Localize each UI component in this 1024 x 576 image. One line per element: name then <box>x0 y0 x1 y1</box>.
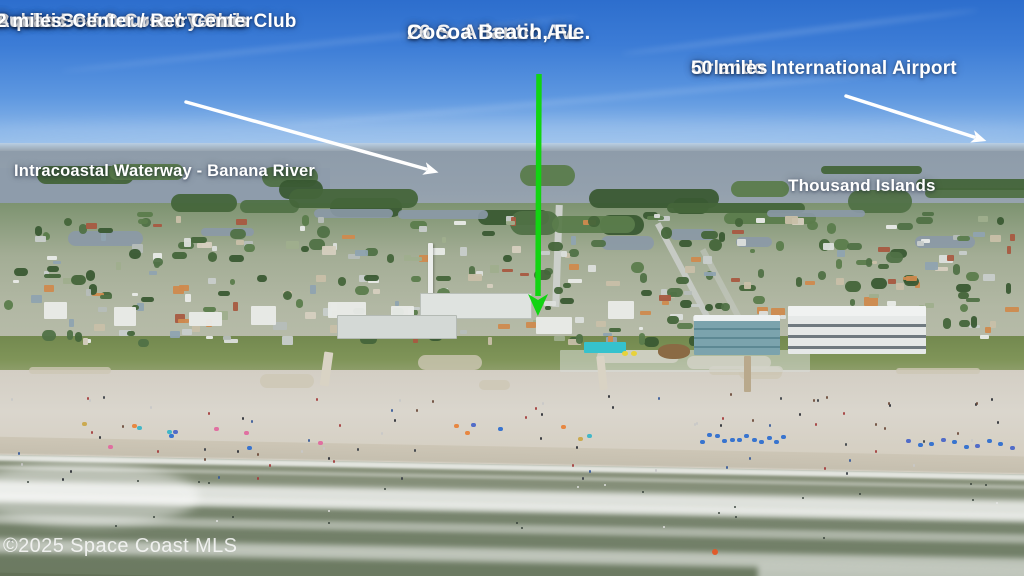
country-club-arrow <box>186 102 426 169</box>
mls-watermark: ©2025 Space Coast MLS <box>3 535 237 558</box>
airport-arrow <box>846 96 974 137</box>
waterway-label: Intracoastal Waterway - Banana River <box>14 162 315 181</box>
islands-label: Thousand Islands <box>788 176 936 196</box>
annotation-arrows <box>0 0 1024 576</box>
address-arrow <box>538 74 539 296</box>
aerial-photo: Cocoa Beach Country Club Public Golf Cou… <box>0 0 1024 576</box>
